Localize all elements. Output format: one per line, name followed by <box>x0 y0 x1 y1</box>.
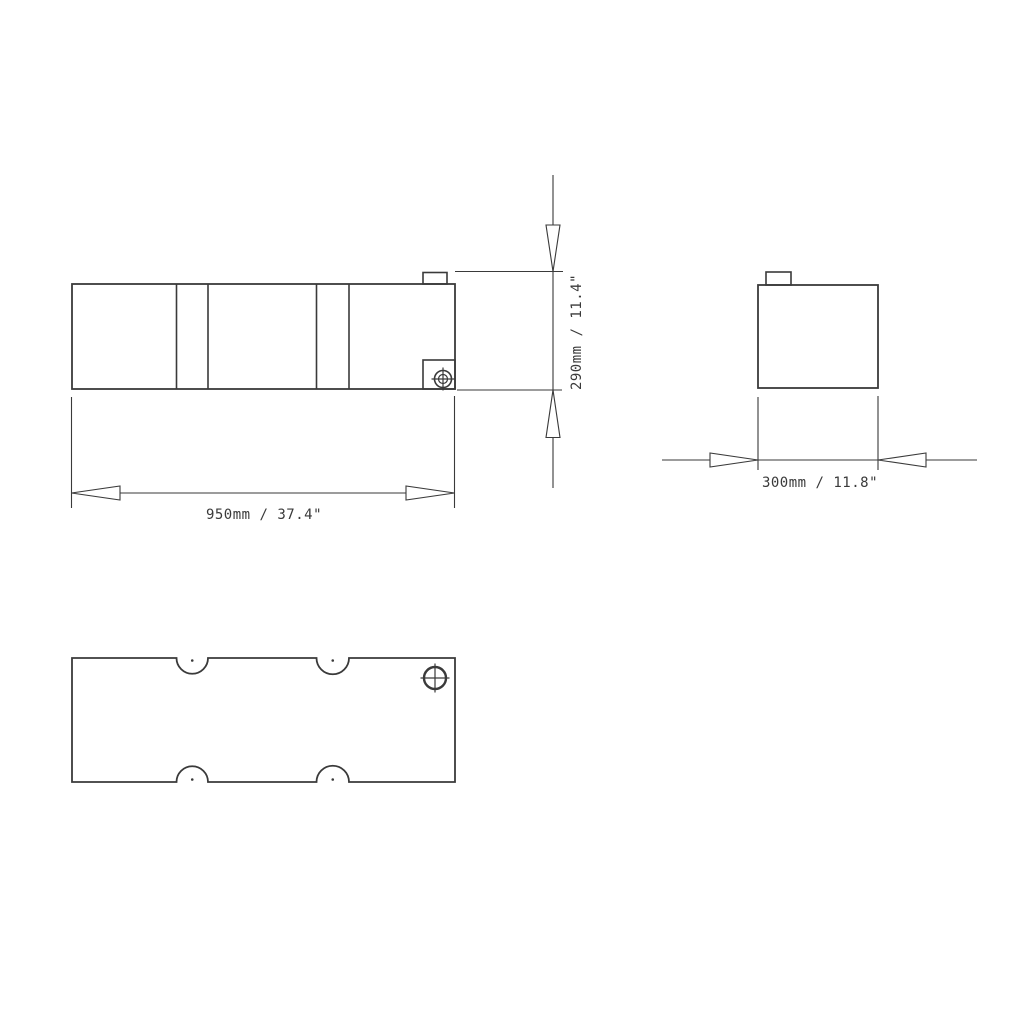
technical-drawing-canvas: 950mm / 37.4" 290mm / 11.4" 300mm / 11.8… <box>0 0 1024 1024</box>
side-view <box>758 272 878 388</box>
width-dimension-label: 300mm / 11.8" <box>762 475 878 491</box>
front-view-outline <box>72 284 455 389</box>
arrowhead-right-icon <box>878 453 926 467</box>
side-view-outline <box>758 285 878 388</box>
notch-center-dot <box>191 659 194 662</box>
length-dimension: 950mm / 37.4" <box>72 396 455 523</box>
top-view-outline <box>72 658 455 782</box>
length-dimension-label: 950mm / 37.4" <box>206 507 322 523</box>
filler-neck-side <box>766 272 791 285</box>
top-view <box>72 658 455 782</box>
front-view <box>72 273 455 391</box>
outlet-fitting-icon <box>432 368 455 391</box>
fill-port-icon <box>421 664 450 693</box>
arrowhead-left-icon <box>72 486 121 500</box>
notch-center-dot <box>331 659 334 662</box>
arrowhead-left-icon <box>710 453 758 467</box>
width-dimension: 300mm / 11.8" <box>662 396 977 491</box>
notch-center-dot <box>331 778 334 781</box>
drawing-layer: 950mm / 37.4" 290mm / 11.4" 300mm / 11.8… <box>72 175 978 782</box>
arrowhead-right-icon <box>406 486 455 500</box>
height-dimension-label: 290mm / 11.4" <box>569 274 585 390</box>
arrowhead-bottom-icon <box>546 390 560 438</box>
height-dimension: 290mm / 11.4" <box>455 175 585 488</box>
arrowhead-top-icon <box>546 225 560 272</box>
notch-center-dot <box>191 778 194 781</box>
filler-neck-front <box>423 273 447 285</box>
